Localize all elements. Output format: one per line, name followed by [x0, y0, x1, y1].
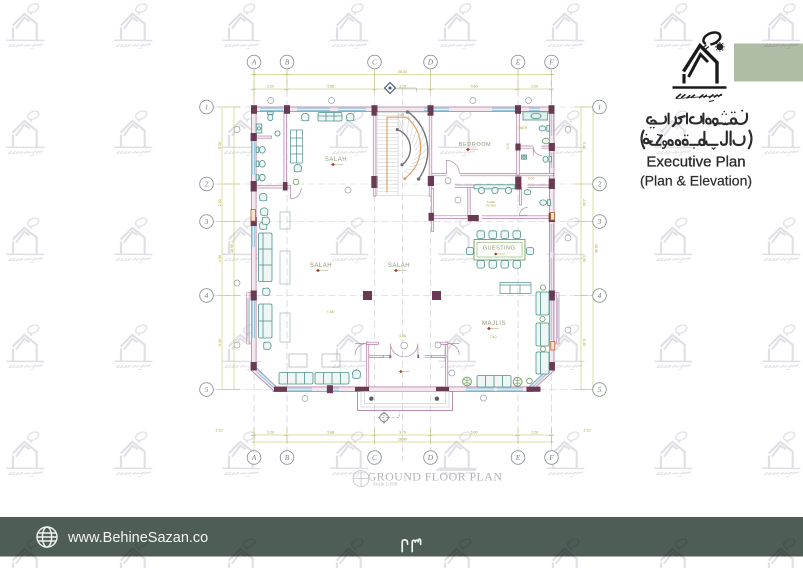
svg-text:A: A — [251, 58, 257, 67]
svg-text:F: F — [548, 58, 554, 67]
svg-text:A: A — [251, 453, 257, 462]
svg-text:28.00: 28.00 — [398, 438, 407, 442]
svg-text:5: 5 — [205, 385, 209, 394]
svg-text:B: B — [285, 58, 290, 67]
svg-text:6.30: 6.30 — [582, 339, 586, 346]
svg-text:3.70: 3.70 — [399, 430, 406, 434]
svg-text:2.50: 2.50 — [218, 199, 222, 206]
svg-text:Scale 1:100: Scale 1:100 — [373, 482, 398, 488]
svg-text:16.90: 16.90 — [230, 244, 234, 253]
svg-text:(Plan & Elevation): (Plan & Elevation) — [640, 173, 752, 189]
svg-text:E: E — [515, 58, 521, 67]
svg-text:1: 1 — [598, 103, 602, 112]
svg-text:5: 5 — [598, 385, 602, 394]
svg-text:2.10: 2.10 — [216, 428, 223, 432]
svg-text:2: 2 — [205, 180, 209, 189]
svg-text:BATH: BATH — [519, 126, 528, 130]
svg-text:B: B — [285, 453, 290, 462]
svg-text:2.20: 2.20 — [267, 430, 274, 434]
svg-text:2: 2 — [598, 180, 602, 189]
svg-text:E: E — [515, 453, 521, 462]
svg-text:5.88: 5.88 — [327, 84, 334, 88]
svg-text:4.90: 4.90 — [582, 255, 586, 262]
svg-text:6.30: 6.30 — [218, 339, 222, 346]
svg-text:D: D — [427, 58, 434, 67]
svg-text:2.20: 2.20 — [531, 430, 538, 434]
svg-text:5.60: 5.60 — [471, 430, 478, 434]
svg-text:4.90: 4.90 — [218, 255, 222, 262]
svg-text:1: 1 — [205, 103, 209, 112]
svg-text:2.10: 2.10 — [584, 428, 591, 432]
svg-text:BEDROOM: BEDROOM — [459, 142, 491, 148]
svg-text:16.90: 16.90 — [594, 244, 598, 253]
svg-text:SALAH: SALAH — [388, 263, 410, 269]
svg-text:5.60: 5.60 — [471, 84, 478, 88]
svg-text:ROOM: ROOM — [486, 204, 496, 208]
svg-text:4: 4 — [205, 291, 209, 300]
svg-text:F: F — [548, 453, 554, 462]
svg-text:4.40: 4.40 — [399, 334, 406, 338]
svg-text:D: D — [427, 453, 434, 462]
svg-text:7.40: 7.40 — [490, 335, 497, 339]
svg-text:3: 3 — [204, 217, 209, 226]
svg-text:SALAH: SALAH — [310, 263, 332, 269]
svg-text:5.10: 5.10 — [582, 142, 586, 149]
svg-text:26.00: 26.00 — [398, 70, 407, 74]
svg-text:2.20: 2.20 — [267, 84, 274, 88]
svg-text:7.48: 7.48 — [327, 310, 334, 314]
svg-text:4: 4 — [598, 291, 602, 300]
svg-text:5.88: 5.88 — [327, 430, 334, 434]
svg-text:3.00: 3.00 — [528, 177, 535, 181]
svg-text:2.88: 2.88 — [398, 113, 405, 117]
svg-text:2.20: 2.20 — [531, 84, 538, 88]
svg-text:3.00: 3.00 — [506, 143, 510, 150]
svg-text:www.BehineSazan.co: www.BehineSazan.co — [67, 530, 208, 546]
svg-text:MAJLIS: MAJLIS — [482, 321, 506, 327]
svg-text:2.50: 2.50 — [582, 199, 586, 206]
svg-text:5.10: 5.10 — [218, 142, 222, 149]
svg-text:Executive Plan: Executive Plan — [646, 154, 745, 171]
svg-text:SALAH: SALAH — [325, 157, 347, 163]
svg-text:3.70: 3.70 — [399, 84, 406, 88]
svg-text:3: 3 — [597, 217, 602, 226]
svg-text:GUESTING: GUESTING — [483, 246, 515, 252]
